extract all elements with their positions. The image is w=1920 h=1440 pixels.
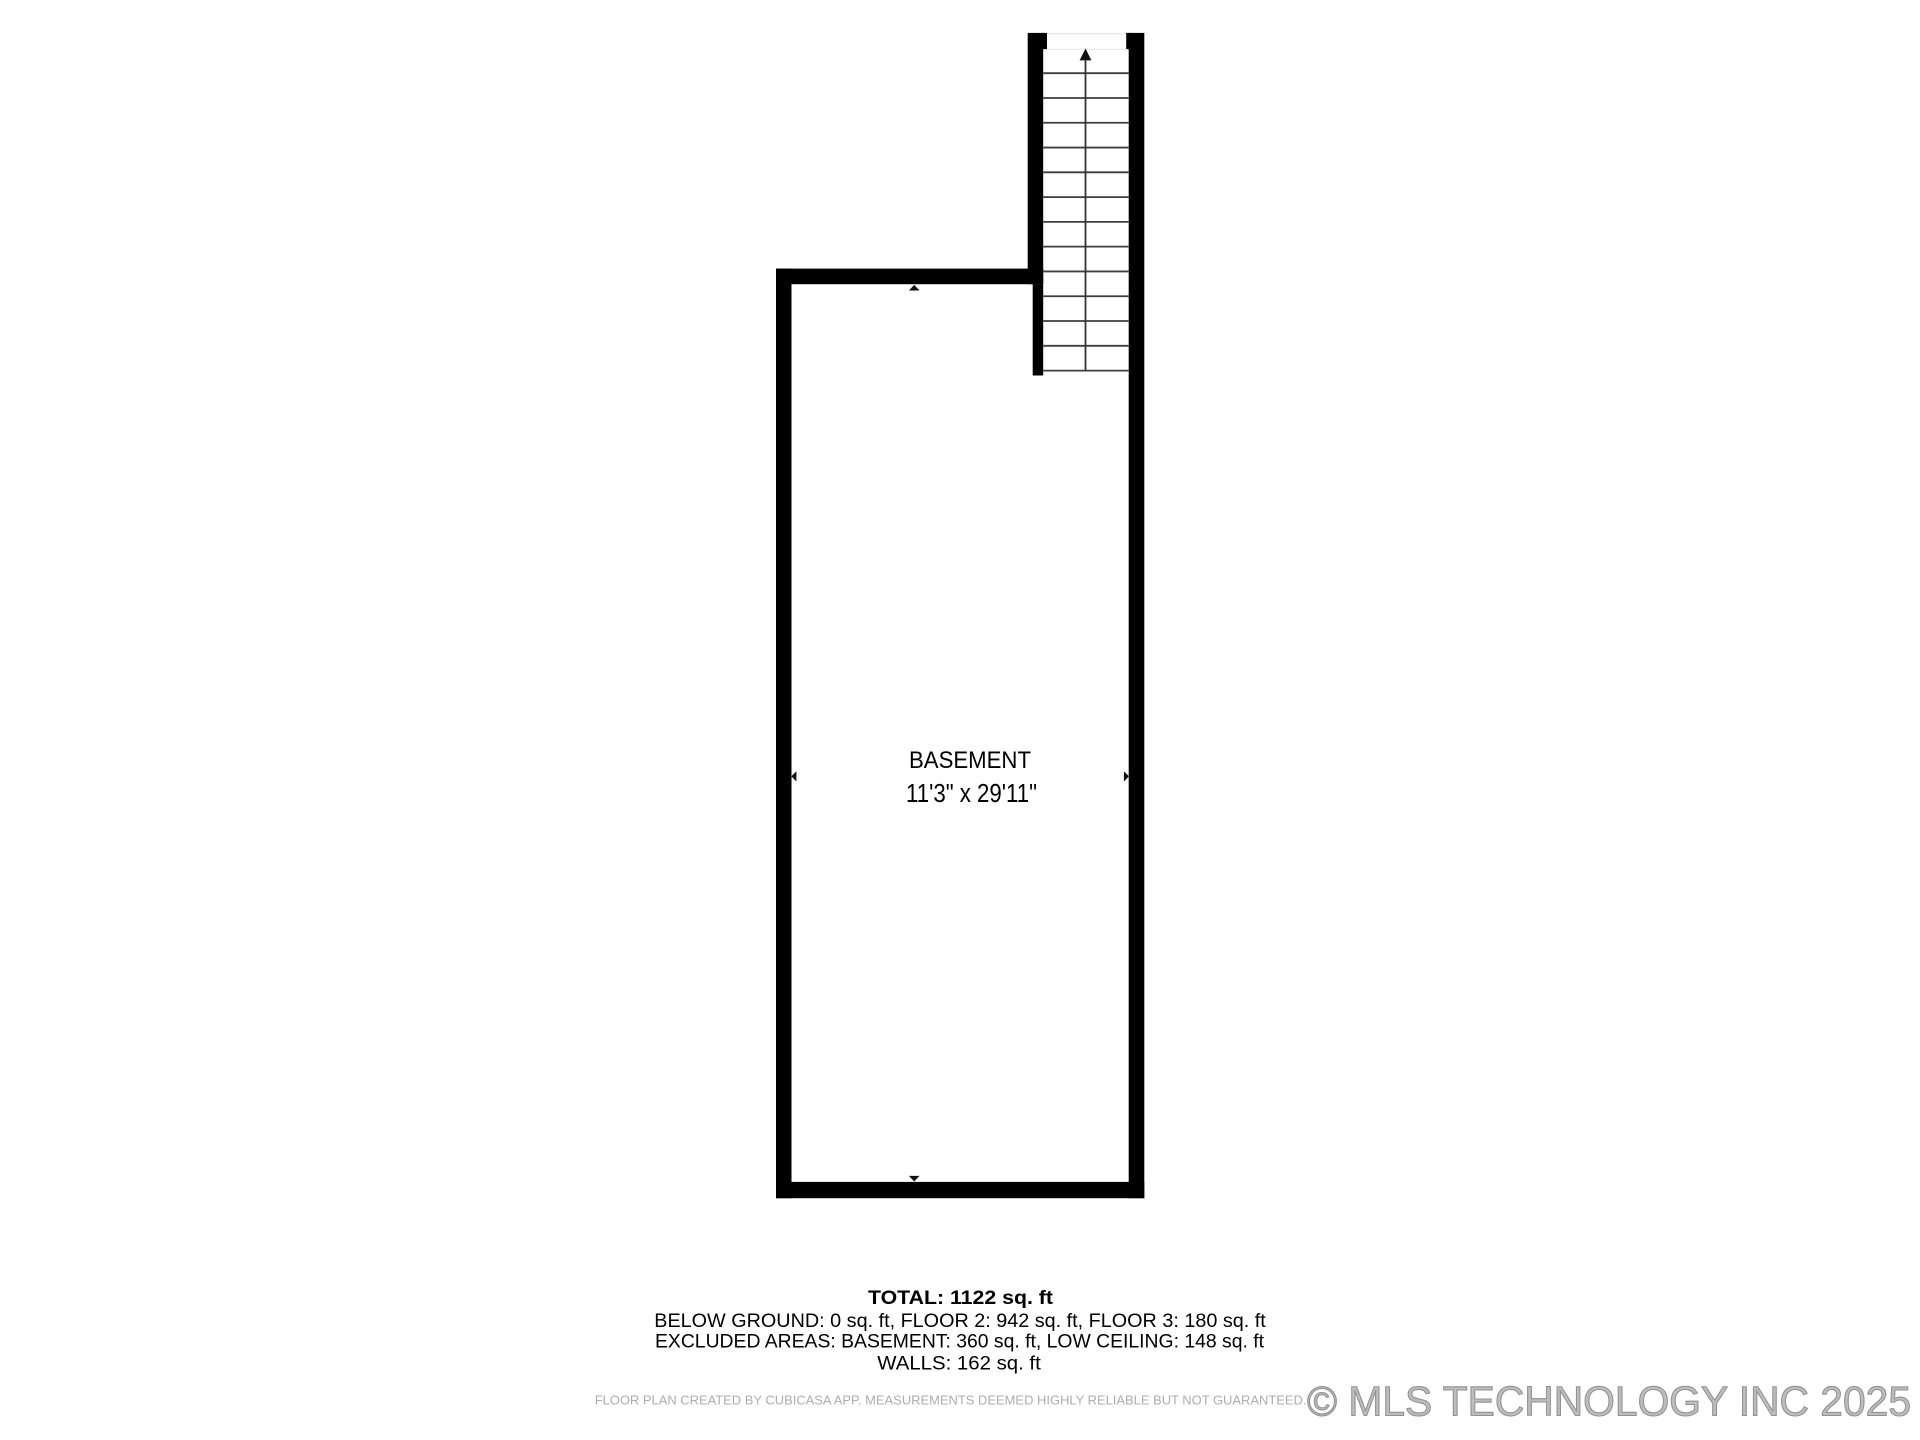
svg-text:© MLS TECHNOLOGY INC 2025: © MLS TECHNOLOGY INC 2025 xyxy=(1307,1378,1911,1425)
svg-text:EXCLUDED AREAS: BASEMENT: 360: EXCLUDED AREAS: BASEMENT: 360 sq. ft, LO… xyxy=(655,1331,1265,1353)
svg-text:BASEMENT: BASEMENT xyxy=(909,747,1031,774)
svg-text:BELOW GROUND: 0 sq. ft, FLOOR: BELOW GROUND: 0 sq. ft, FLOOR 2: 942 sq.… xyxy=(654,1310,1266,1332)
svg-text:WALLS: 162 sq. ft: WALLS: 162 sq. ft xyxy=(877,1353,1041,1375)
svg-text:11'3" x 29'11": 11'3" x 29'11" xyxy=(906,780,1037,808)
svg-text:TOTAL: 1122 sq. ft: TOTAL: 1122 sq. ft xyxy=(868,1287,1054,1309)
svg-text:FLOOR PLAN CREATED BY CUBICASA: FLOOR PLAN CREATED BY CUBICASA APP. MEAS… xyxy=(595,1392,1307,1407)
